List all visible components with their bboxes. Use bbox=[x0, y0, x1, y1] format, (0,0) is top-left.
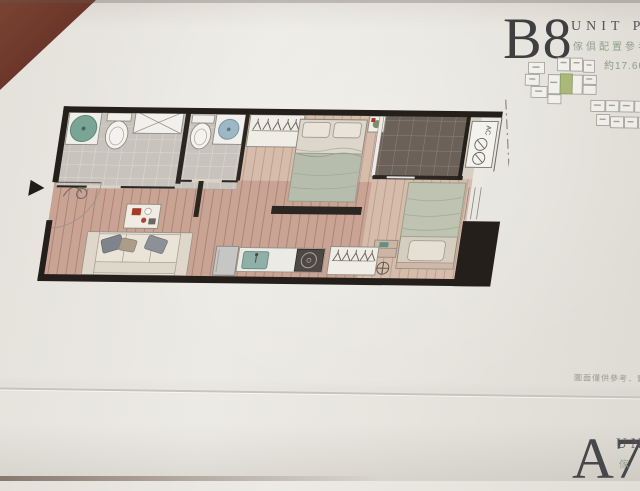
floor-plan: AC bbox=[9, 86, 520, 292]
a7-subtitle-en: UN bbox=[616, 436, 640, 453]
key-plan-highlighted-unit bbox=[560, 74, 572, 94]
entrance-arrow-icon bbox=[28, 180, 45, 196]
a7-subtitle-cn: 傢 bbox=[619, 456, 629, 471]
sofa-pillow bbox=[118, 238, 137, 253]
square-basin bbox=[212, 114, 246, 144]
storage-closet bbox=[133, 111, 184, 134]
photographed-brochure-page: { "b8_section": { "title": "B8", "subtit… bbox=[0, 0, 640, 481]
partition-wall bbox=[271, 206, 362, 215]
bathroom1-door bbox=[86, 185, 120, 188]
wardrobe-hangers bbox=[246, 115, 305, 148]
kitchen-counter bbox=[236, 247, 326, 272]
sofa bbox=[81, 232, 193, 276]
unit-subtitle-en: UNIT PLAN bbox=[571, 19, 640, 35]
coffee-table bbox=[123, 204, 161, 228]
balcony-door-gap bbox=[387, 176, 415, 178]
master-bed bbox=[288, 119, 368, 202]
bathroom2-door bbox=[192, 179, 222, 182]
balcony-tile-floor bbox=[373, 115, 469, 178]
key-plan-units bbox=[524, 57, 640, 128]
page-top-edge-shadow bbox=[0, 0, 640, 3]
drying-rack-hangers bbox=[327, 247, 379, 276]
key-plan-site-map bbox=[502, 49, 640, 143]
disclaimer-text: 圖面僅供參考．實際 bbox=[574, 372, 640, 384]
ac-label: AC bbox=[483, 125, 491, 135]
page-bottom-edge-shadow bbox=[0, 476, 380, 481]
table-surface-corner bbox=[0, 0, 96, 90]
page-fold-divider bbox=[0, 387, 640, 398]
refrigerator bbox=[212, 246, 238, 275]
corner-wall-mass bbox=[453, 221, 520, 287]
